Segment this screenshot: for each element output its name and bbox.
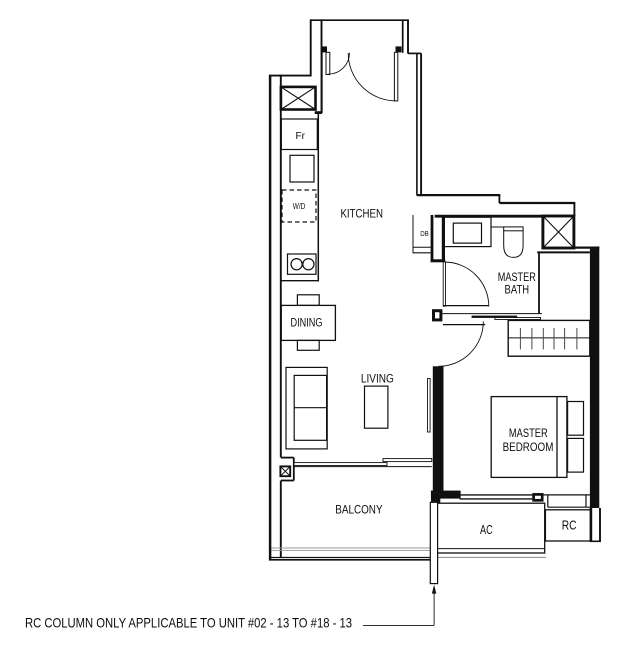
svg-text:BALCONY: BALCONY: [335, 505, 383, 517]
svg-text:LIVING: LIVING: [361, 374, 394, 386]
svg-text:DB: DB: [420, 229, 429, 238]
svg-text:RC: RC: [562, 519, 577, 533]
svg-text:W/D: W/D: [293, 202, 306, 211]
svg-text:BATH: BATH: [505, 285, 530, 297]
svg-text:MASTER: MASTER: [509, 428, 548, 440]
svg-text:AC: AC: [480, 523, 493, 537]
svg-text:DINING: DINING: [291, 318, 323, 330]
svg-text:BEDROOM: BEDROOM: [503, 442, 554, 454]
svg-text:RC COLUMN ONLY APPLICABLE TO U: RC COLUMN ONLY APPLICABLE TO UNIT #02 - …: [25, 615, 352, 631]
svg-text:Fr: Fr: [296, 131, 306, 142]
svg-text:KITCHEN: KITCHEN: [340, 208, 383, 220]
svg-text:MASTER: MASTER: [498, 272, 536, 284]
